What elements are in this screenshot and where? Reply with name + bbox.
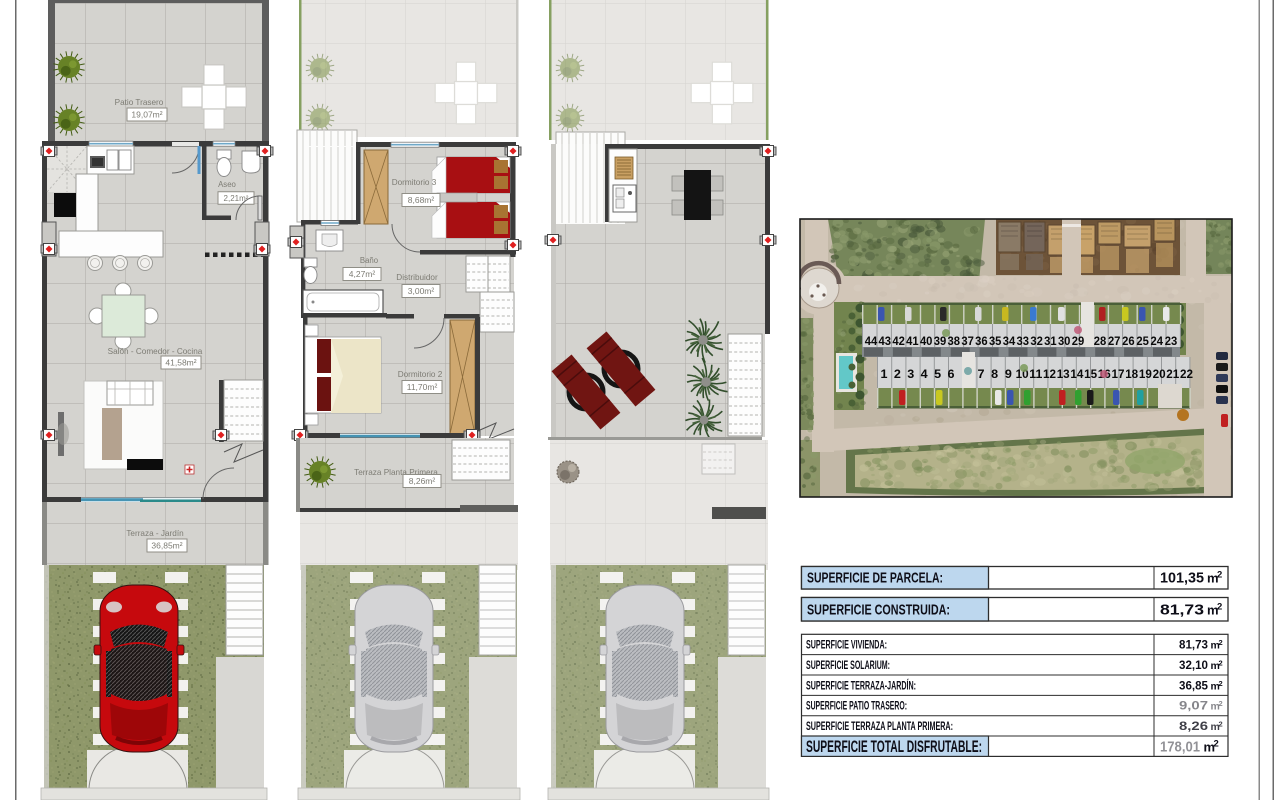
svg-text:44: 44: [865, 334, 878, 348]
svg-text:14: 14: [1070, 367, 1083, 381]
svg-text:2: 2: [1214, 738, 1219, 749]
svg-text:23: 23: [1165, 334, 1178, 348]
svg-text:26: 26: [1122, 334, 1135, 348]
svg-text:3: 3: [907, 367, 914, 381]
svg-text:SUPERFICIE SOLARIUM:: SUPERFICIE SOLARIUM:: [806, 660, 890, 672]
svg-text:Dormitorio 3: Dormitorio 3: [392, 178, 437, 187]
svg-text:19,07m²: 19,07m²: [131, 110, 162, 120]
svg-text:SUPERFICIE TERRAZA PLANTA PRIM: SUPERFICIE TERRAZA PLANTA PRIMERA:: [806, 721, 953, 733]
svg-text:6: 6: [948, 367, 955, 381]
svg-text:22: 22: [1180, 367, 1193, 381]
svg-text:SUPERFICIE TERRAZA-JARDÍN:: SUPERFICIE TERRAZA-JARDÍN:: [806, 679, 916, 692]
svg-text:40: 40: [920, 334, 933, 348]
svg-text:Aseo: Aseo: [218, 180, 236, 189]
svg-text:5: 5: [934, 367, 941, 381]
svg-text:32: 32: [1030, 334, 1043, 348]
svg-text:2: 2: [1217, 602, 1222, 613]
svg-text:Salón - Comedor - Cocina: Salón - Comedor - Cocina: [108, 347, 203, 356]
svg-text:36,85m²: 36,85m²: [151, 541, 182, 551]
svg-text:29: 29: [1072, 334, 1085, 348]
svg-text:8: 8: [991, 367, 998, 381]
svg-text:178,01: 178,01: [1160, 739, 1200, 755]
svg-text:8,68m²: 8,68m²: [408, 195, 435, 205]
svg-text:Terraza - Jardín: Terraza - Jardín: [126, 529, 184, 538]
svg-text:2: 2: [1219, 659, 1223, 668]
svg-text:SUPERFICIE DE PARCELA:: SUPERFICIE DE PARCELA:: [807, 570, 943, 587]
svg-text:34: 34: [1003, 334, 1016, 348]
svg-text:2: 2: [1219, 720, 1223, 729]
svg-text:7: 7: [978, 367, 985, 381]
svg-text:21: 21: [1166, 367, 1179, 381]
svg-text:4: 4: [921, 367, 928, 381]
svg-text:11: 11: [1029, 367, 1042, 381]
svg-text:37: 37: [961, 334, 974, 348]
svg-text:4,27m²: 4,27m²: [349, 269, 376, 279]
svg-text:27: 27: [1108, 334, 1121, 348]
svg-text:SUPERFICIE TOTAL DISFRUTABLE:: SUPERFICIE TOTAL DISFRUTABLE:: [806, 738, 982, 756]
svg-text:43: 43: [879, 334, 892, 348]
svg-text:Dormitorio 2: Dormitorio 2: [398, 370, 443, 379]
svg-text:42: 42: [892, 334, 905, 348]
svg-text:Distribuidor: Distribuidor: [396, 273, 438, 282]
svg-text:28: 28: [1094, 334, 1107, 348]
svg-text:SUPERFICIE CONSTRUIDA:: SUPERFICIE CONSTRUIDA:: [807, 602, 950, 619]
svg-text:2: 2: [1217, 570, 1222, 581]
svg-text:SUPERFICIE VIVIENDA:: SUPERFICIE VIVIENDA:: [806, 640, 887, 652]
svg-text:36,85: 36,85: [1179, 680, 1209, 692]
svg-text:9: 9: [1005, 367, 1012, 381]
svg-text:32,10: 32,10: [1179, 660, 1208, 672]
svg-text:15: 15: [1084, 367, 1097, 381]
svg-text:101,35: 101,35: [1160, 571, 1204, 587]
svg-text:11,70m²: 11,70m²: [407, 382, 438, 392]
svg-text:81,73: 81,73: [1160, 603, 1204, 619]
svg-text:9,07: 9,07: [1179, 701, 1208, 713]
svg-text:18: 18: [1125, 367, 1138, 381]
svg-text:SUPERFICIE PATIO TRASERO:: SUPERFICIE PATIO TRASERO:: [806, 701, 907, 713]
svg-text:12: 12: [1043, 367, 1056, 381]
svg-text:Patio Trasero: Patio Trasero: [115, 98, 164, 107]
svg-text:2: 2: [894, 367, 901, 381]
svg-text:13: 13: [1057, 367, 1070, 381]
svg-text:38: 38: [948, 334, 961, 348]
svg-text:41,58m²: 41,58m²: [165, 358, 196, 368]
svg-text:2: 2: [1219, 638, 1223, 647]
svg-text:25: 25: [1136, 334, 1149, 348]
svg-text:36: 36: [975, 334, 988, 348]
svg-text:1: 1: [881, 367, 888, 381]
svg-text:8,26: 8,26: [1179, 721, 1208, 733]
svg-text:24: 24: [1151, 334, 1164, 348]
svg-text:81,73: 81,73: [1179, 640, 1208, 652]
svg-text:17: 17: [1112, 367, 1125, 381]
svg-text:35: 35: [989, 334, 1002, 348]
svg-text:2: 2: [1219, 699, 1223, 708]
svg-text:31: 31: [1044, 334, 1057, 348]
svg-text:Baño: Baño: [360, 256, 379, 265]
svg-text:3,00m²: 3,00m²: [408, 286, 435, 296]
svg-text:33: 33: [1017, 334, 1030, 348]
svg-text:2: 2: [1219, 679, 1223, 688]
svg-text:20: 20: [1153, 367, 1166, 381]
svg-text:30: 30: [1058, 334, 1071, 348]
svg-text:19: 19: [1139, 367, 1152, 381]
svg-text:8,26m²: 8,26m²: [409, 476, 436, 486]
svg-text:41: 41: [906, 334, 919, 348]
